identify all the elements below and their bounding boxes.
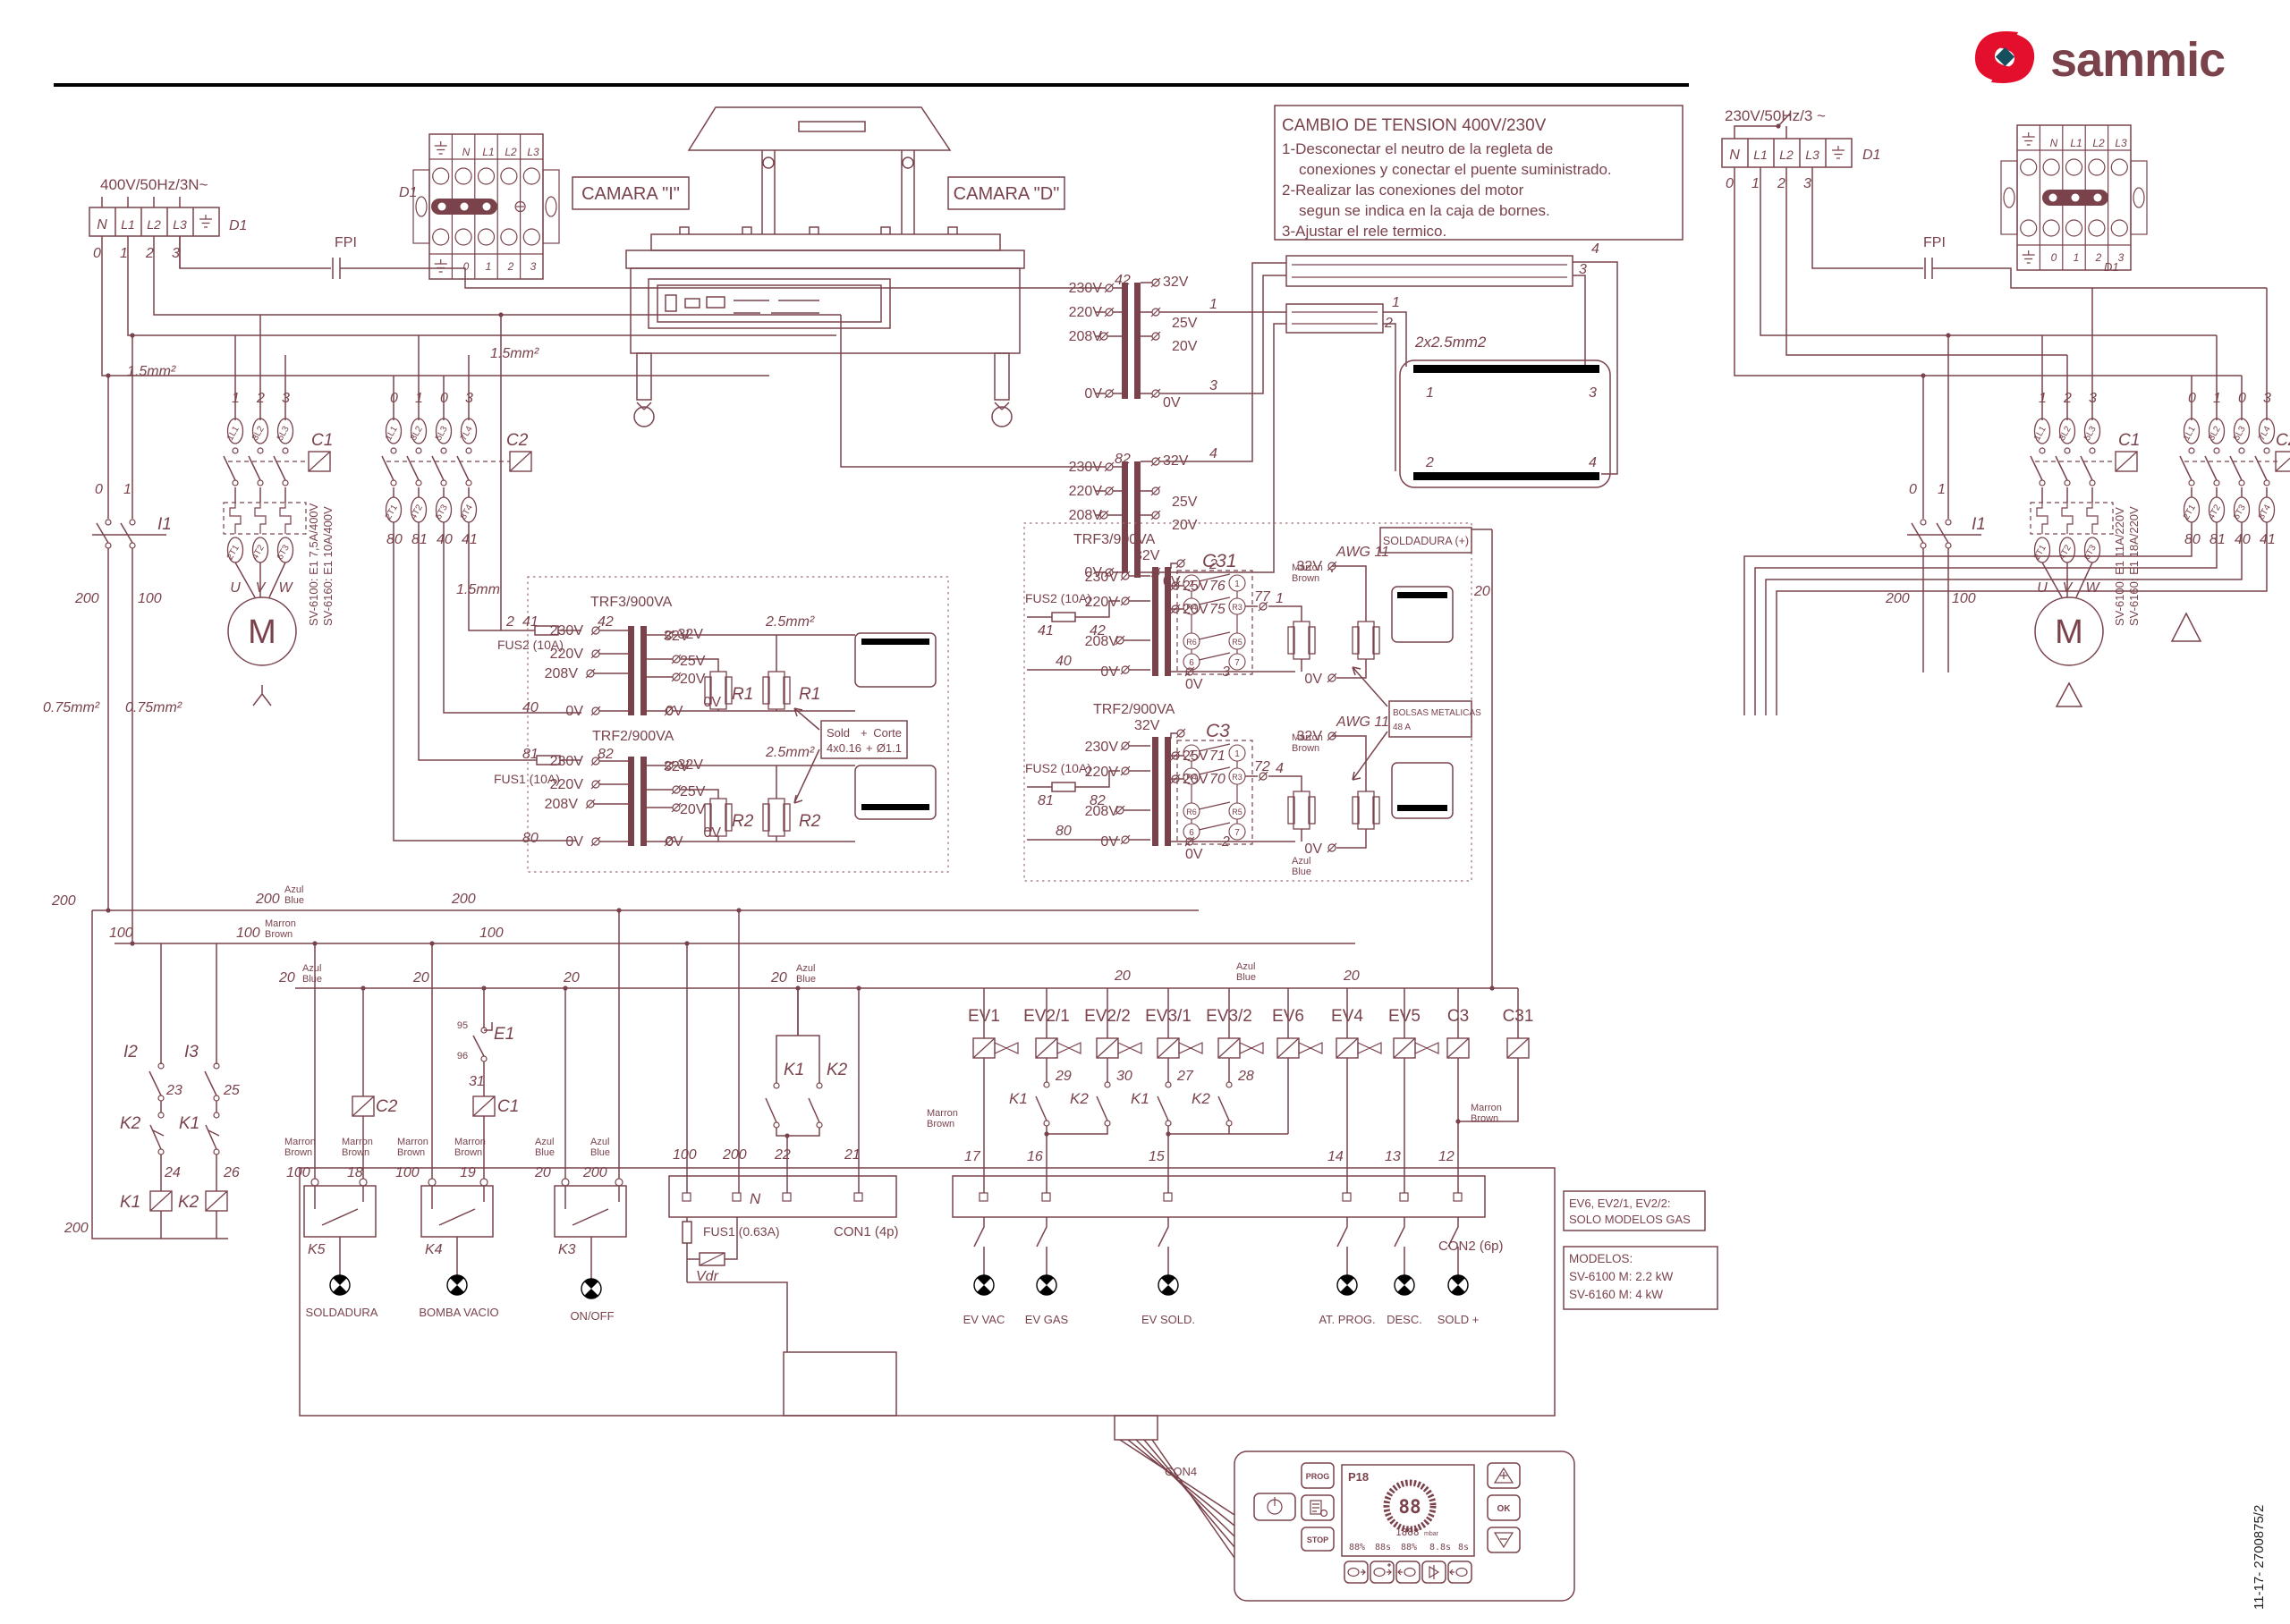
schematic-label: R2 <box>732 812 754 831</box>
schematic-label: 32V <box>678 757 704 773</box>
schematic-label: 2 <box>1189 579 1194 589</box>
schematic-label: 2 <box>1221 834 1230 850</box>
schematic-label: 0 <box>463 260 470 273</box>
schematic-label: 0 <box>2238 391 2246 406</box>
schematic-label: 3 <box>282 391 290 406</box>
schematic-label: 0 <box>1726 176 1734 191</box>
schematic-label: K2 <box>120 1114 141 1133</box>
schematic-label: 3 <box>172 246 180 261</box>
note-text: + <box>866 741 873 755</box>
schematic-label: 3 <box>2118 251 2125 264</box>
schematic-label: R2 <box>799 812 821 831</box>
schematic-label: D1 <box>2104 260 2119 274</box>
schematic-label: EV3/1 <box>1145 1007 1192 1026</box>
schematic-label: Azul <box>1292 856 1310 867</box>
star-connection-symbol <box>253 685 271 706</box>
schematic-sheet: sammic <box>0 0 2290 1624</box>
schematic-label: 0 <box>2188 391 2196 406</box>
schematic-label: 0V <box>666 704 683 719</box>
schematic-label: 41 <box>1038 623 1054 639</box>
bolsas-note: BOLSAS METALICAS 48 A <box>1389 701 1481 737</box>
schematic-label: 40 <box>2235 532 2251 547</box>
schematic-label: 0 <box>1909 482 1917 497</box>
seal-icon <box>1429 1565 1438 1579</box>
schematic-label: 25V <box>1172 495 1198 510</box>
program-number: P18 <box>1348 1470 1369 1484</box>
seal-bar-top <box>1413 365 1599 373</box>
schematic-label: CON1 (4p) <box>834 1224 899 1239</box>
schematic-label: EV4 <box>1331 1007 1363 1026</box>
schematic-label: 0 <box>390 391 398 406</box>
schematic-label: 2.5mm² <box>765 614 815 630</box>
schematic-label: 4 <box>1589 455 1597 470</box>
schematic-label: 20 <box>278 970 295 985</box>
note-text: Corte <box>873 726 902 740</box>
schematic-label: Marron <box>1471 1103 1502 1113</box>
relay-k3 <box>555 1179 626 1298</box>
note-text: Sold <box>827 726 850 740</box>
schematic-label: Blue <box>535 1147 555 1158</box>
schematic-label: EV VAC <box>963 1313 1005 1326</box>
schematic-label: R3 <box>1232 603 1243 612</box>
schematic-label: N <box>750 1190 761 1207</box>
schematic-label: 3 <box>1803 176 1811 191</box>
note-text: MODELOS: <box>1569 1252 1633 1265</box>
schematic-label: SV-6100: E1 7,5A/400V <box>307 503 320 626</box>
stop-label: STOP <box>1307 1535 1328 1544</box>
schematic-label: 208V <box>1085 634 1119 649</box>
schematic-label: 1 <box>486 260 492 273</box>
schematic-label: Marron <box>397 1137 428 1147</box>
minus-triangle-icon <box>1495 1533 1513 1547</box>
schematic-label: C2 <box>506 431 529 450</box>
schematic-label: 28 <box>1237 1069 1254 1084</box>
schematic-label: 25V <box>680 784 706 799</box>
schematic-label: 20 <box>563 970 580 985</box>
con1-connector <box>669 988 896 1416</box>
schematic-label: 4 <box>1209 446 1217 461</box>
delta-connection-symbol <box>2057 683 2082 706</box>
schematic-label: U <box>230 580 241 596</box>
schematic-label: 40 <box>1056 654 1072 669</box>
display-field: 88% <box>1401 1543 1417 1552</box>
board-outline <box>300 1168 1555 1416</box>
schematic-label: 81 <box>2209 532 2226 547</box>
schematic-label: 82 <box>1115 452 1131 467</box>
schematic-label: 4 <box>1276 761 1284 776</box>
schematic-label: L2 <box>2092 137 2105 149</box>
note-text: EV6, EV2/1, EV2/2: <box>1569 1197 1670 1210</box>
schematic-label: 32V <box>1134 548 1160 563</box>
schematic-label: 220V <box>1085 595 1119 610</box>
schematic-label: FUS2 (10A) <box>1025 761 1091 775</box>
schematic-label: I3 <box>184 1043 199 1062</box>
schematic-label: 32V <box>1163 275 1189 290</box>
schematic-label: TRF3/900VA <box>1073 532 1156 547</box>
schematic-label: 200 <box>64 1221 89 1236</box>
wiring-diagram: sammic <box>0 0 2290 1624</box>
schematic-label: Azul <box>535 1137 554 1147</box>
schematic-label: 22 <box>774 1147 791 1163</box>
schematic-label: K3 <box>558 1242 576 1257</box>
schematic-label: N <box>462 146 471 158</box>
control-panel: PROG STOP P18 88 1888 mbar 88% 88s 88% 8… <box>1234 1451 1574 1601</box>
schematic-label: 20V <box>1172 518 1198 533</box>
schematic-label: 42 <box>1115 273 1131 288</box>
schematic-label: 220V <box>550 647 584 662</box>
seal-bar-bottom <box>1413 472 1599 480</box>
mbar-value: 1888 <box>1395 1527 1420 1538</box>
schematic-label: 19 <box>460 1165 476 1180</box>
schematic-label: 230V <box>1069 281 1103 296</box>
voltage-change-notice: CAMBIO DE TENSION 400V/230V 1-Desconecta… <box>1275 106 1683 240</box>
schematic-label: 80 <box>386 532 403 547</box>
schematic-label: 80 <box>1056 824 1072 839</box>
schematic-label: Brown <box>265 929 293 940</box>
schematic-label: 1 <box>1276 591 1284 606</box>
schematic-label: 0V <box>1100 834 1118 850</box>
sold-corte-note: Sold + Corte 4x0.16 + Ø1.1 <box>821 721 907 758</box>
schematic-label: 3 <box>1209 378 1217 393</box>
schematic-label: R5 <box>1232 808 1243 816</box>
notice-title: CAMBIO DE TENSION 400V/230V <box>1282 116 1547 135</box>
schematic-label: 0.75mm² <box>43 700 100 715</box>
schematic-label: L3 <box>2115 137 2127 149</box>
gas-models-note: EV6, EV2/1, EV2/2: SOLO MODELOS GAS <box>1564 1191 1705 1231</box>
schematic-label: 2.5mm² <box>765 745 815 760</box>
schematic-label: FPI <box>1923 235 1946 250</box>
schematic-label: 0V <box>1304 672 1322 687</box>
schematic-label: 100 <box>236 926 260 941</box>
schematic-label: C31 <box>1503 1007 1534 1026</box>
schematic-label: 220V <box>1085 765 1119 780</box>
schematic-label: L1 <box>482 146 494 158</box>
schematic-label: N <box>2050 137 2058 149</box>
schematic-label: AWG 11 <box>1336 545 1389 560</box>
schematic-label: 0V <box>565 704 583 719</box>
schematic-label: 3 <box>465 391 473 406</box>
schematic-label: SV-6100: E1 11A/220V <box>2113 507 2126 626</box>
schematic-label: 25V <box>1183 749 1209 764</box>
contactor-c1-right <box>2031 288 2137 706</box>
schematic-label: 12 <box>1438 1149 1455 1164</box>
schematic-label: 3 <box>2089 391 2097 406</box>
schematic-label: Brown <box>1292 743 1319 754</box>
schematic-label: 32V <box>1163 453 1189 469</box>
schematic-label: 17 <box>964 1149 981 1164</box>
note-text: + <box>861 726 868 740</box>
schematic-label: K2 <box>827 1061 848 1079</box>
schematic-label: DESC. <box>1387 1313 1422 1326</box>
note-text: SOLO MODELOS GAS <box>1569 1213 1691 1226</box>
schematic-label: CON4 <box>1165 1465 1197 1478</box>
relay-k5 <box>304 1179 376 1295</box>
con4-connector <box>1115 1416 1234 1558</box>
schematic-label: Marron <box>454 1137 486 1147</box>
schematic-label: AWG 11 <box>1336 715 1389 730</box>
schematic-label: C3 <box>1206 721 1230 741</box>
schematic-label: 80 <box>2184 532 2201 547</box>
schematic-label: K5 <box>308 1242 326 1257</box>
schematic-label: TRF2/900VA <box>1093 702 1175 717</box>
seal-bar-display <box>855 765 936 819</box>
contactor-c2-right <box>1744 288 2290 715</box>
schematic-label: C31 <box>1202 551 1237 571</box>
schematic-label: 20 <box>1343 968 1360 984</box>
schematic-label: 29 <box>1055 1069 1072 1084</box>
schematic-label: C2 <box>2276 431 2290 450</box>
schematic-label: 71 <box>1209 749 1226 764</box>
schematic-label: 14 <box>1327 1149 1344 1164</box>
schematic-label: Marron <box>342 1137 373 1147</box>
schematic-label: 0V <box>703 825 721 841</box>
schematic-label: 40 <box>522 700 539 715</box>
schematic-label: 100 <box>395 1165 420 1180</box>
schematic-label: 200 <box>1885 591 1910 606</box>
schematic-label: R6 <box>1186 808 1197 816</box>
schematic-label: Blue <box>590 1147 610 1158</box>
schematic-label: EV6 <box>1272 1007 1304 1026</box>
schematic-label: 1.5mm² <box>127 364 176 379</box>
modelos-note: MODELOS: SV-6100 M: 2.2 kW SV-6160 M: 4 … <box>1564 1247 1717 1309</box>
schematic-label: 20 <box>1114 968 1131 984</box>
schematic-label: 1 <box>1234 749 1240 759</box>
schematic-label: 0V <box>565 834 583 850</box>
schematic-label: U <box>2037 580 2048 596</box>
ok-label: OK <box>1497 1504 1512 1514</box>
schematic-label: 77 <box>1254 589 1271 605</box>
schematic-label: K1 <box>784 1061 804 1079</box>
schematic-label: 2 <box>1384 316 1393 331</box>
note-text: 4x0.16 <box>827 741 861 755</box>
schematic-label: 23 <box>165 1083 182 1098</box>
schematic-label: Azul <box>302 963 321 974</box>
schematic-label: 0V <box>1084 386 1102 402</box>
schematic-label: 70 <box>1209 772 1226 787</box>
schematic-label: 1.5mm² <box>490 346 539 361</box>
schematic-label: FUS1 (0.63A) <box>703 1224 780 1239</box>
schematic-label: C1 <box>497 1097 519 1116</box>
schematic-label: EV1 <box>968 1007 1000 1026</box>
schematic-label: 41 <box>462 532 478 547</box>
schematic-label: 0V <box>1185 847 1203 862</box>
interlock-circuit <box>149 1063 227 1239</box>
schematic-label: SV-6160: E1 18A/220V <box>2127 506 2141 626</box>
schematic-label: 1 <box>2039 391 2047 406</box>
schematic-label: TRF2/900VA <box>592 729 674 744</box>
schematic-label: 3 <box>1579 262 1587 277</box>
schematic-label: L3 <box>527 146 539 158</box>
schematic-label: 72 <box>1254 759 1270 774</box>
schematic-label: 16 <box>1027 1149 1043 1164</box>
schematic-label: 200 <box>51 893 76 909</box>
schematic-label: 7 <box>1234 658 1240 668</box>
schematic-label: 24 <box>164 1165 181 1180</box>
control-buses <box>92 908 1518 1239</box>
schematic-label: 230V/50Hz/3 ~ <box>1725 107 1826 124</box>
note-text: SV-6160 M: 4 kW <box>1569 1288 1663 1301</box>
schematic-label: EV2/1 <box>1023 1007 1070 1026</box>
schematic-label: 1 <box>2213 391 2221 406</box>
schematic-label: 25 <box>223 1083 240 1098</box>
schematic-label: N <box>1729 148 1740 163</box>
schematic-label: EV GAS <box>1025 1313 1069 1326</box>
schematic-label: EV5 <box>1388 1007 1421 1026</box>
schematic-label: 0V <box>666 834 683 850</box>
warning-triangle <box>2172 613 2201 641</box>
schematic-label: 3 <box>1589 385 1597 401</box>
schematic-label: 1 <box>1234 579 1240 589</box>
schematic-label: 1 <box>232 391 240 406</box>
schematic-label: 2x2.5mm2 <box>1414 334 1487 351</box>
schematic-label: R6 <box>1186 638 1197 647</box>
schematic-label: 0V <box>1163 574 1181 589</box>
schematic-label: D1 <box>1862 148 1880 163</box>
schematic-label: 20 <box>770 970 787 985</box>
schematic-label: 15 <box>1149 1149 1165 1164</box>
gauge-value: 88 <box>1398 1496 1421 1518</box>
schematic-label: 208V <box>1085 804 1119 819</box>
schematic-label: 0 <box>95 482 103 497</box>
schematic-label: C1 <box>2118 431 2140 450</box>
schematic-label: Brown <box>1471 1113 1498 1124</box>
schematic-label: L1 <box>1753 148 1768 162</box>
schematic-label: Brown <box>927 1119 954 1129</box>
schematic-label: 21 <box>844 1147 861 1163</box>
schematic-label: L2 <box>147 217 161 232</box>
schematic-label: 100 <box>673 1147 697 1163</box>
schematic-label: 230V <box>1085 570 1119 585</box>
note-text: 48 A <box>1393 723 1411 732</box>
schematic-label: C1 <box>311 431 333 450</box>
schematic-label: TRF3/900VA <box>590 595 673 610</box>
schematic-label: Blue <box>1292 867 1311 877</box>
schematic-label: V <box>256 580 267 596</box>
schematic-label: 0 <box>2051 251 2057 264</box>
schematic-label: 400V/50Hz/3N~ <box>100 176 208 193</box>
schematic-label: M <box>248 613 276 651</box>
schematic-label: 100 <box>1952 591 1976 606</box>
schematic-label: 42 <box>598 614 614 630</box>
schematic-label: 1 <box>1938 482 1946 497</box>
logo-wordmark: sammic <box>2050 33 2225 87</box>
schematic-label: I1 <box>1972 515 1986 534</box>
machine-drawing <box>626 107 1024 427</box>
schematic-label: 1 <box>1426 385 1434 401</box>
schematic-label: 2 <box>507 260 514 273</box>
schematic-label: 20V <box>1172 339 1198 354</box>
schematic-label: EV3/2 <box>1206 1007 1252 1026</box>
note-text: SV-6100 M: 2.2 kW <box>1569 1270 1674 1283</box>
schematic-label: K2 <box>1070 1090 1089 1107</box>
schematic-label: 76 <box>1209 579 1226 594</box>
schematic-label: L3 <box>173 217 187 232</box>
schematic-label: 208V <box>1069 329 1103 344</box>
schematic-label: 220V <box>550 777 584 792</box>
schematic-label: L2 <box>505 146 517 158</box>
schematic-label: Azul <box>284 884 303 895</box>
notice-line: 1-Desconectar el neutro de la regleta de <box>1282 140 1553 157</box>
schematic-label: 100 <box>109 926 133 941</box>
schematic-label: 32V <box>1297 559 1323 574</box>
schematic-label: R1 <box>799 685 820 704</box>
schematic-label: L2 <box>1779 148 1794 162</box>
schematic-label: 32V <box>1134 718 1160 733</box>
schematic-label: K4 <box>425 1242 443 1257</box>
display-field: 88% <box>1349 1543 1365 1552</box>
schematic-label: Blue <box>796 974 816 985</box>
schematic-label: 2 <box>256 391 265 406</box>
schematic-label: Blue <box>1236 972 1256 983</box>
schematic-label: 230V <box>1085 740 1119 755</box>
schematic-label: 31 <box>469 1074 485 1089</box>
schematic-label: 2 <box>505 614 514 630</box>
schematic-label: 20V <box>680 672 706 687</box>
schematic-label: 0V <box>703 695 721 710</box>
schematic-label: 6 <box>1189 658 1194 668</box>
board-module <box>784 1352 896 1416</box>
schematic-label: R4 <box>1186 603 1197 612</box>
schematic-label: Blue <box>302 974 322 985</box>
schematic-label: SOLD + <box>1438 1313 1480 1326</box>
schematic-label: 18 <box>347 1165 363 1180</box>
schematic-label: 25V <box>1183 579 1209 594</box>
schematic-label: 32V <box>1297 729 1323 744</box>
schematic-label: E1 <box>494 1025 514 1044</box>
schematic-label: 200 <box>582 1165 607 1180</box>
schematic-label: FPI <box>335 235 357 250</box>
note-text: Ø1.1 <box>877 741 902 755</box>
schematic-label: 81 <box>1038 793 1054 808</box>
schematic-label: 41 <box>2260 532 2276 547</box>
schematic-label: EV2/2 <box>1084 1007 1131 1026</box>
schematic-label: 75 <box>1209 602 1226 617</box>
schematic-label: R5 <box>1232 638 1243 647</box>
contactor-c2-left <box>382 335 531 522</box>
schematic-label: 25V <box>1172 316 1198 331</box>
schematic-label: 30 <box>1116 1069 1132 1084</box>
schematic-label: 2 <box>1777 176 1785 191</box>
schematic-label: 1 <box>1392 295 1400 310</box>
schematic-label: 2 <box>2095 251 2102 264</box>
schematic-label: 82 <box>598 747 614 762</box>
schematic-label: 32V <box>678 627 704 642</box>
schematic-label: 2 <box>145 246 154 261</box>
schematic-label: Vdr <box>696 1269 719 1284</box>
schematic-label: 20 <box>1473 584 1490 599</box>
schematic-label: 1 <box>120 246 128 261</box>
sammic-logo: sammic <box>1975 31 2225 87</box>
note-text: BOLSAS METALICAS <box>1393 708 1481 718</box>
schematic-label: 2 <box>2063 391 2072 406</box>
schematic-label: 80 <box>522 831 539 846</box>
schematic-label: R1 <box>732 685 753 704</box>
notice-line: 2-Realizar las conexiones del motor <box>1282 182 1524 199</box>
con2-connector <box>953 1176 1485 1295</box>
display-field: 88s <box>1375 1543 1391 1552</box>
schematic-label: M <box>2055 613 2083 651</box>
schematic-label: 40 <box>437 532 453 547</box>
schematic-label: 20V <box>680 802 706 817</box>
schematic-label: 95 <box>457 1020 468 1031</box>
schematic-label: Marron <box>265 918 296 929</box>
schematic-label: AT. PROG. <box>1319 1313 1375 1326</box>
schematic-label: SV-6160: E1 10A/400V <box>321 506 335 626</box>
soldadura-title: SOLDADURA (+) <box>1383 535 1469 547</box>
schematic-label: Brown <box>397 1147 425 1158</box>
schematic-label: 100 <box>286 1165 310 1180</box>
schematic-label: K2 <box>1192 1090 1210 1107</box>
